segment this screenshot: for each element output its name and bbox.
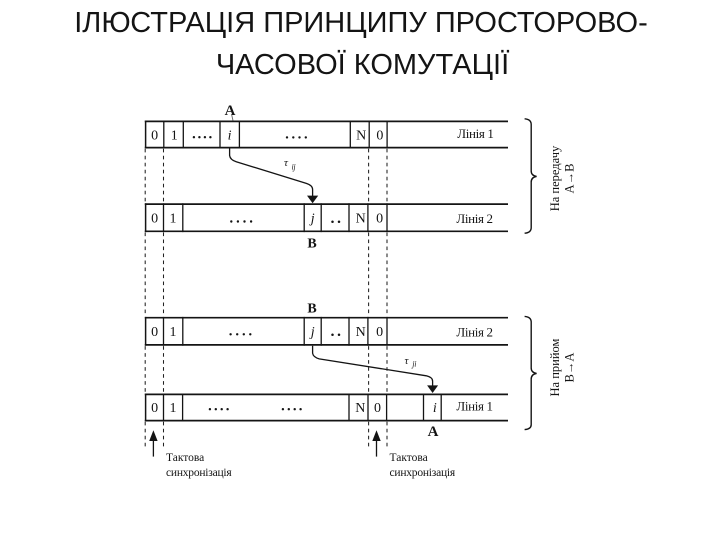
svg-text:N: N [356, 128, 366, 143]
svg-text:0: 0 [376, 128, 383, 143]
svg-text:0: 0 [374, 401, 381, 416]
svg-text:0: 0 [151, 401, 158, 416]
svg-text:В→А: В→А [563, 353, 577, 383]
svg-text:τ: τ [284, 157, 289, 169]
svg-text:А→В: А→В [563, 164, 577, 194]
svg-text:На прийом: На прийом [548, 338, 562, 396]
svg-text:A: A [428, 424, 439, 440]
svg-text:1: 1 [170, 211, 177, 226]
svg-text:Лінія 2: Лінія 2 [456, 211, 492, 226]
svg-text:1: 1 [170, 401, 177, 416]
svg-text:N: N [356, 211, 366, 226]
svg-text:0: 0 [151, 211, 158, 226]
svg-text:Лінія 1: Лінія 1 [456, 399, 492, 414]
svg-text:синхронізація: синхронізація [390, 467, 456, 479]
svg-text:ІЛЮСТРАЦІЯ ПРИНЦИПУ ПРОСТОРОВО: ІЛЮСТРАЦІЯ ПРИНЦИПУ ПРОСТОРОВО- [74, 7, 648, 39]
svg-text:0: 0 [376, 325, 383, 340]
svg-text:N: N [356, 325, 366, 340]
svg-text:B: B [307, 237, 316, 252]
svg-text:1: 1 [170, 325, 177, 340]
svg-text:τ: τ [405, 355, 410, 367]
svg-text:ji: ji [411, 360, 416, 369]
svg-text:Лінія 2: Лінія 2 [456, 325, 492, 340]
svg-text:ij: ij [292, 163, 297, 172]
svg-text:Тактова: Тактова [390, 452, 428, 464]
svg-text:A: A [225, 103, 236, 119]
svg-text:Лінія 1: Лінія 1 [457, 126, 493, 141]
svg-text:0: 0 [376, 211, 383, 226]
svg-text:ЧАСОВОЇ КОМУТАЦІЇ: ЧАСОВОЇ КОМУТАЦІЇ [216, 49, 509, 81]
svg-text:N: N [355, 401, 365, 416]
svg-text:j: j [309, 211, 315, 226]
svg-text:0: 0 [151, 128, 158, 143]
svg-text:i: i [433, 401, 437, 416]
svg-text:Тактова: Тактова [166, 452, 204, 464]
svg-text:B: B [307, 302, 316, 317]
svg-text:0: 0 [151, 325, 158, 340]
svg-text:синхронізація: синхронізація [166, 467, 232, 479]
svg-text:На передачу: На передачу [548, 145, 562, 211]
svg-text:i: i [228, 128, 232, 143]
svg-text:j: j [309, 325, 315, 340]
svg-text:1: 1 [171, 128, 178, 143]
